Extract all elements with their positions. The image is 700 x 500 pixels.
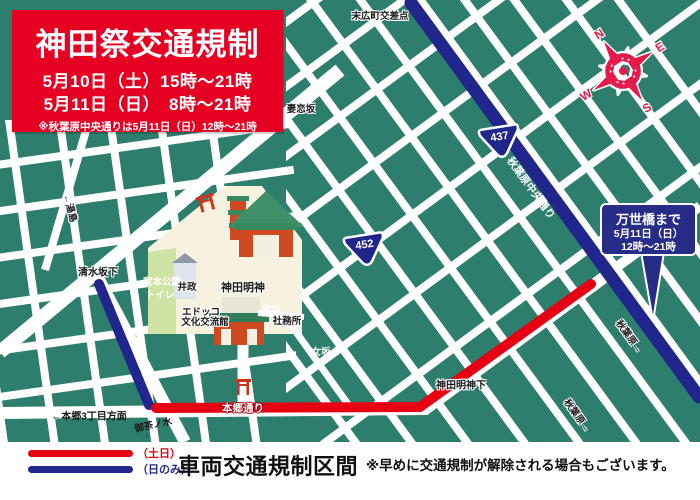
label-kanda-myojin-shita: 神田明神下 — [436, 377, 486, 392]
legend-blue-line-icon — [28, 466, 133, 473]
traffic-regulation-banner: 神田祭交通規制 5月10日（土）15時～21時 5月11日（日） 8時～21時 … — [12, 10, 283, 132]
callout-time: 12時～21時 — [602, 241, 695, 254]
label-hongo-3chome-direction: ←本郷3丁目方面 — [51, 408, 127, 423]
label-hongo-dori: 本郷通り — [222, 401, 264, 416]
label-tsumakoizaka: 妻恋坂 — [287, 101, 316, 115]
callout-title: 万世橋まで — [602, 209, 695, 228]
kanda-matsuri-traffic-map-poster: { "banner": { "title": "神田祭交通規制", "date_… — [0, 0, 700, 500]
label-onnazaka: 女坂 — [311, 344, 330, 358]
mansebashi-callout: 万世橋まで 5月11日（日） 12時～21時 — [600, 203, 697, 256]
label-imasa: 井政 — [177, 279, 196, 293]
label-shamusho: 社務所 — [273, 313, 302, 327]
legend-bar: （土日） （日のみ） 車両交通規制区間 ※早めに交通規制が解除される場合もござい… — [0, 442, 700, 500]
legend-title: 車両交通規制区間 — [178, 449, 358, 481]
label-edocco-line2: 文化交流館 — [181, 314, 229, 328]
legend-sat-sun-label: （土日） — [137, 445, 181, 461]
callout-date: 5月11日（日） — [602, 228, 695, 241]
legend-note: ※早めに交通規制が解除される場合もございます。 — [366, 454, 675, 474]
legend-red-line-icon — [28, 450, 133, 457]
label-suehirocho-intersection: 末広町交差点 — [351, 8, 408, 22]
banner-date-saturday: 5月10日（土）15時～21時 — [12, 70, 283, 93]
label-shimizuzaka-shita: 清水坂下 — [78, 264, 118, 279]
label-toilet: トイレ — [146, 287, 175, 301]
banner-note: ※秋葉原中央通りは5月11日（日）12時～21時 — [12, 119, 283, 134]
label-kanda-myojin: 神田明神 — [221, 279, 265, 295]
label-ochanomizu-arrow: ↓ — [145, 430, 149, 439]
label-miyamoto-park: 宮本公園 — [143, 274, 181, 288]
banner-date-sunday: 5月11日（日） 8時～21時 — [12, 93, 283, 116]
poster-title: 神田祭交通規制 — [12, 19, 283, 64]
